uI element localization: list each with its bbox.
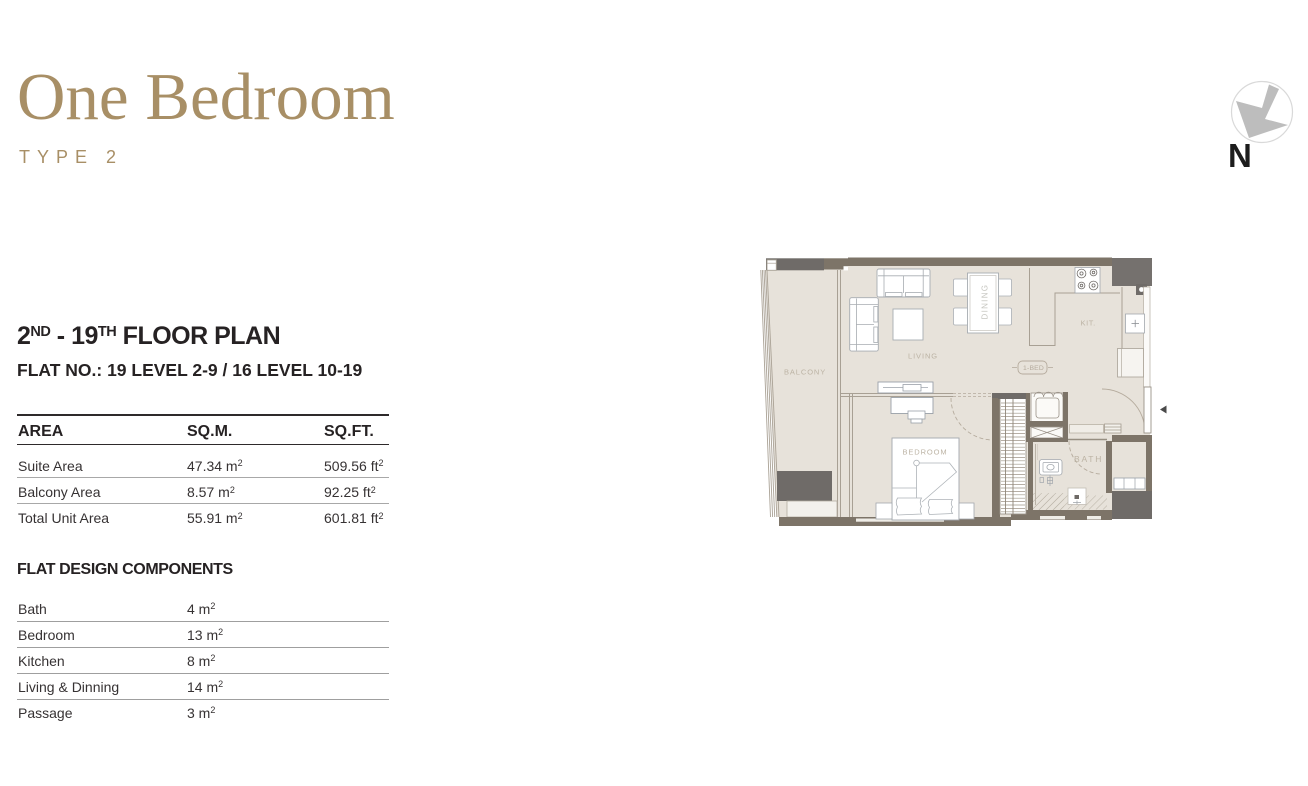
svg-text:N: N — [1228, 137, 1252, 174]
svg-text:DINING: DINING — [981, 284, 990, 320]
svg-text:LIVING: LIVING — [908, 352, 938, 361]
svg-text:1-BED: 1-BED — [1023, 365, 1044, 372]
svg-text:BALCONY: BALCONY — [784, 368, 826, 377]
svg-text:BATH: BATH — [1074, 454, 1103, 464]
svg-text:KIT.: KIT. — [1081, 319, 1096, 328]
svg-text:BEDROOM: BEDROOM — [903, 448, 948, 457]
